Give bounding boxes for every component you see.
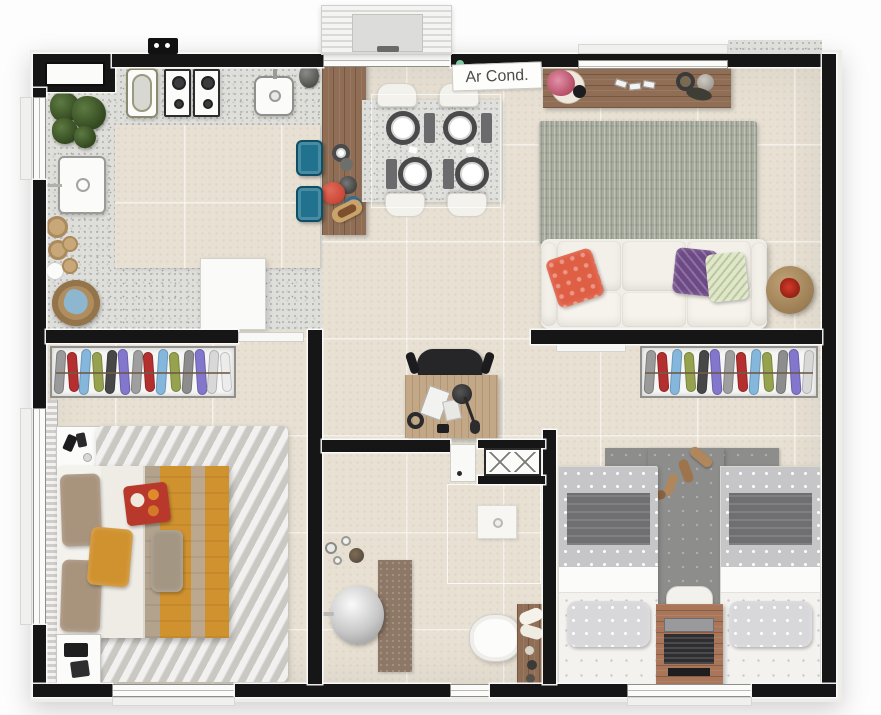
speaker-on-nightstand xyxy=(70,660,90,678)
food-orange xyxy=(147,505,159,517)
exterior-sill-top xyxy=(578,44,728,54)
dinner-plate xyxy=(398,157,432,191)
hanging-garment xyxy=(657,352,670,393)
kid-sheet-fold xyxy=(559,567,658,593)
service-window-top xyxy=(323,54,451,67)
stove-module-left xyxy=(164,69,191,117)
exterior-wall-left xyxy=(33,88,46,97)
duct-wall-top xyxy=(478,440,545,448)
kid-pillow xyxy=(729,601,812,647)
dinner-plate xyxy=(455,157,489,191)
wicker-jar xyxy=(62,258,78,274)
wardrobe-kids xyxy=(640,346,818,398)
interior-wall-bathroom-top xyxy=(322,440,450,452)
refrigerator xyxy=(200,258,266,330)
duct-wall-bottom xyxy=(478,476,545,484)
hanging-garment xyxy=(104,350,117,395)
toiletry-jar xyxy=(341,536,351,546)
shower-head-panel xyxy=(477,505,517,539)
plant xyxy=(72,96,106,130)
exterior-sill-left xyxy=(20,408,32,625)
bedroom2-window-bottom xyxy=(627,684,752,697)
hanging-garment xyxy=(156,349,169,396)
bar-stool xyxy=(296,140,323,176)
wardrobe-master xyxy=(50,346,236,398)
cutlery-mat xyxy=(443,159,454,189)
double-bed xyxy=(57,466,229,638)
living-rug xyxy=(539,121,757,244)
kid-duvet-panel xyxy=(567,493,650,545)
bathroom-shelf xyxy=(517,604,546,688)
bedroom1-window-bottom xyxy=(112,684,235,697)
shelf-jar xyxy=(526,674,535,683)
towel-roll xyxy=(519,623,544,641)
exterior-wall-bottom xyxy=(752,684,836,697)
burner-icon xyxy=(172,76,186,90)
pillow-green xyxy=(705,251,750,303)
exterior-wall-bottom xyxy=(33,684,112,697)
kid-pillow xyxy=(567,601,650,647)
toilet xyxy=(469,614,522,662)
shower-head xyxy=(493,518,503,528)
smartphone xyxy=(437,424,449,433)
kitchen-sink xyxy=(254,76,294,116)
vent-dot xyxy=(165,43,170,48)
hanging-garment xyxy=(92,352,105,393)
shelf-jar xyxy=(525,646,534,655)
shelf-jar xyxy=(527,660,537,670)
air-conditioner-label-text: Ar Cond. xyxy=(465,66,529,86)
door-knob xyxy=(457,471,462,476)
side-table xyxy=(766,266,814,314)
breakfast-tray xyxy=(123,481,172,526)
stove-module-right xyxy=(193,69,220,117)
hanging-garment xyxy=(709,349,722,396)
hanging-garment xyxy=(749,349,762,396)
exterior-wall-bottom xyxy=(490,684,627,697)
hanging-garment xyxy=(788,349,801,396)
dinner-plate xyxy=(386,111,420,145)
red-plant xyxy=(780,278,800,298)
bar-stool xyxy=(296,186,323,222)
hanging-garment xyxy=(696,350,709,395)
wicker-jar xyxy=(62,236,78,252)
hanging-garment xyxy=(207,350,220,395)
remote-control xyxy=(614,78,628,88)
toiletry-jar xyxy=(325,542,337,554)
hanging-garment xyxy=(53,350,66,395)
hanging-garment xyxy=(736,352,749,393)
interior-wall-living-bottom xyxy=(531,330,822,344)
laundry-basket xyxy=(52,280,100,326)
sink-faucet xyxy=(273,69,277,79)
kids-desk xyxy=(656,604,723,688)
window-in-wall xyxy=(45,62,105,86)
hanging-garment xyxy=(130,350,143,395)
radio-on-nightstand xyxy=(64,643,88,657)
hanging-garment xyxy=(220,352,233,393)
exterior-wall-right xyxy=(822,54,836,697)
bathroom-door-open xyxy=(450,444,476,482)
black-cup xyxy=(573,85,586,98)
headphones xyxy=(407,412,424,429)
hanging-garment xyxy=(117,349,130,396)
exterior-sill-bottom xyxy=(627,697,752,706)
living-window-sill xyxy=(578,60,728,69)
laptop-screen xyxy=(664,618,714,632)
hanging-garment xyxy=(762,352,775,393)
vent-dot xyxy=(154,43,159,48)
wall-vent xyxy=(148,38,178,54)
bar-jar xyxy=(340,158,353,171)
hanging-garment xyxy=(801,350,814,395)
kid-duvet-panel xyxy=(729,493,812,545)
exterior-wall-top-left xyxy=(112,54,323,67)
floor-plan: Ar Cond. xyxy=(0,0,881,715)
tank-drain xyxy=(76,178,90,192)
hanging-garment xyxy=(79,349,92,396)
burner-icon xyxy=(174,99,184,109)
single-bed-right xyxy=(720,466,819,684)
exterior-sill-bottom xyxy=(112,697,235,706)
laptop-keyboard xyxy=(664,634,714,664)
cutlery-mat xyxy=(481,113,492,143)
hanging-garment xyxy=(722,350,735,395)
kettle-red xyxy=(321,182,345,204)
nightstand xyxy=(56,634,101,684)
service-window-left xyxy=(33,97,46,180)
sofa-seat-cushion xyxy=(622,292,686,327)
toiletry-pot xyxy=(349,548,364,563)
duct-cross-icon xyxy=(513,452,537,472)
flower-pink xyxy=(547,70,575,96)
interior-wall-bedroom2-left xyxy=(543,430,556,684)
food-orange xyxy=(147,489,159,501)
kitchen-circulation-floor xyxy=(115,125,320,268)
sideboard xyxy=(543,66,731,108)
bedroom-2-threshold xyxy=(556,344,626,352)
single-bed-left xyxy=(558,466,657,684)
cutlery-mat xyxy=(386,159,397,189)
duct-cross-icon xyxy=(488,452,512,472)
dining-table-glass xyxy=(371,94,501,208)
dinner-plate xyxy=(443,111,477,145)
mouse xyxy=(470,420,480,434)
hanging-garment xyxy=(143,352,156,393)
kid-sheet-fold xyxy=(721,567,820,593)
tank-faucet xyxy=(46,184,62,187)
phone-on-nightstand xyxy=(76,432,88,448)
balcony-strip xyxy=(728,40,822,54)
exterior-wall-bottom xyxy=(235,684,450,697)
towel-roll xyxy=(517,606,544,627)
hanging-garment xyxy=(670,349,683,396)
remote-control xyxy=(642,80,655,89)
laptop-touchpad xyxy=(668,668,710,676)
sink-drain xyxy=(269,90,281,102)
accent-pillow-mustard xyxy=(87,526,134,587)
bedroom1-door-open xyxy=(238,332,304,342)
food-plate xyxy=(130,492,146,508)
laundry-tank xyxy=(58,156,106,214)
hanging-garment xyxy=(181,350,194,395)
plant xyxy=(74,126,96,148)
burner-icon xyxy=(201,76,215,90)
coffee-pot xyxy=(299,64,319,88)
wicker-jar xyxy=(46,216,68,238)
sofa-armrest xyxy=(751,242,767,326)
napkin xyxy=(464,145,475,155)
interior-wall-bedroom1-right xyxy=(308,330,322,684)
cutlery-mat xyxy=(424,113,435,143)
hanging-garment xyxy=(775,350,788,395)
ac-condenser-unit xyxy=(321,5,452,55)
bathroom-sink xyxy=(330,586,384,644)
ac-fan-vent xyxy=(377,46,399,52)
exterior-sill-left xyxy=(20,97,32,180)
burner-icon xyxy=(203,99,213,109)
cup xyxy=(83,453,92,462)
desk-lamp xyxy=(452,384,472,404)
accent-pillow-gray xyxy=(151,530,183,592)
ventilation-duct xyxy=(484,448,541,476)
remote-control xyxy=(629,82,642,90)
bathroom-window-bottom xyxy=(450,684,490,697)
hanging-garment xyxy=(66,352,79,393)
towel-blue xyxy=(61,287,92,318)
bedroom1-window-left xyxy=(33,408,46,625)
laundry-tub-basin xyxy=(132,74,152,112)
interior-wall-bedroom1-top xyxy=(46,330,238,343)
toiletry-jar xyxy=(333,556,342,565)
hanging-garment xyxy=(194,349,207,396)
air-conditioner-label: Ar Cond. xyxy=(452,61,543,91)
hanging-garment xyxy=(644,350,657,395)
hanging-garment xyxy=(683,352,696,393)
hanging-garment xyxy=(169,352,182,393)
exterior-wall-left xyxy=(33,180,46,408)
